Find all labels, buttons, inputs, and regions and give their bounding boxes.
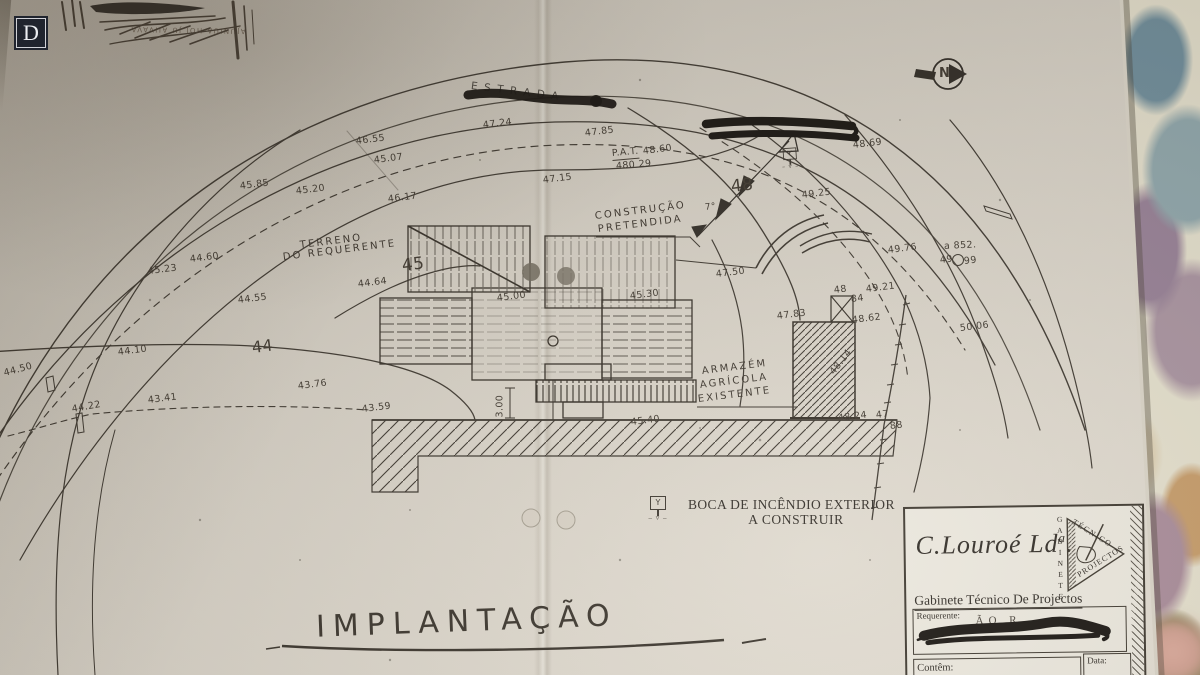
- paper-sheet: ESTRADAN47.2447.8546.5545.0745.8545.2046…: [0, 0, 1200, 675]
- watermark-logo: D: [14, 16, 48, 50]
- redaction-strokes: [468, 93, 856, 138]
- photo-of-site-plan: ESTRADAN47.2447.8546.5545.0745.8545.2046…: [0, 0, 1200, 675]
- stamp-scribbles: [62, 0, 254, 58]
- marker-redactions-and-stamps: [0, 0, 1200, 675]
